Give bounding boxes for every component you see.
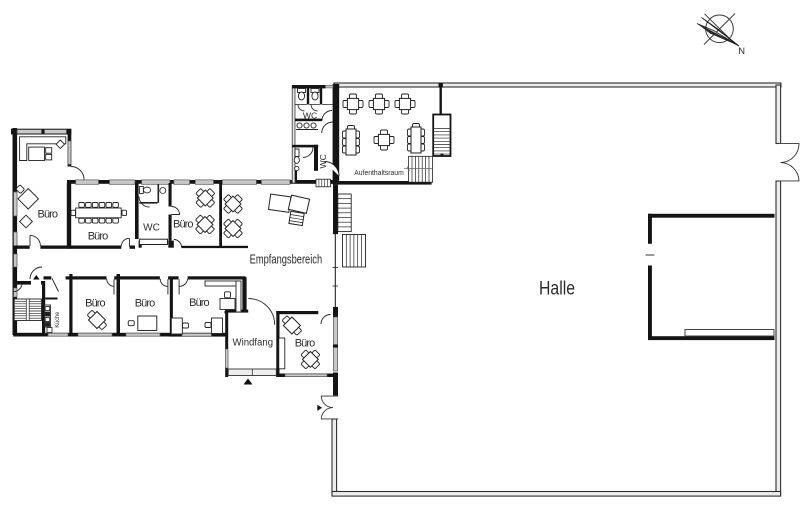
svg-text:Empfangsbereich: Empfangsbereich [250,253,323,267]
svg-text:Büro: Büro [173,218,194,230]
svg-text:WC: WC [303,111,317,121]
svg-text:Büro: Büro [85,297,106,309]
svg-text:Küche: Küche [54,311,61,327]
svg-text:Büro: Büro [189,297,210,309]
svg-text:WC: WC [318,154,328,168]
svg-text:N: N [738,45,745,56]
svg-text:Halle: Halle [539,279,575,300]
svg-text:Büro: Büro [135,297,156,309]
svg-text:Büro: Büro [88,231,109,243]
svg-text:Windfang: Windfang [233,338,274,349]
svg-text:Büro: Büro [38,209,59,221]
svg-text:WC: WC [143,222,160,233]
svg-text:Aufenthaltsraum: Aufenthaltsraum [354,168,404,177]
svg-text:Büro: Büro [295,338,316,350]
